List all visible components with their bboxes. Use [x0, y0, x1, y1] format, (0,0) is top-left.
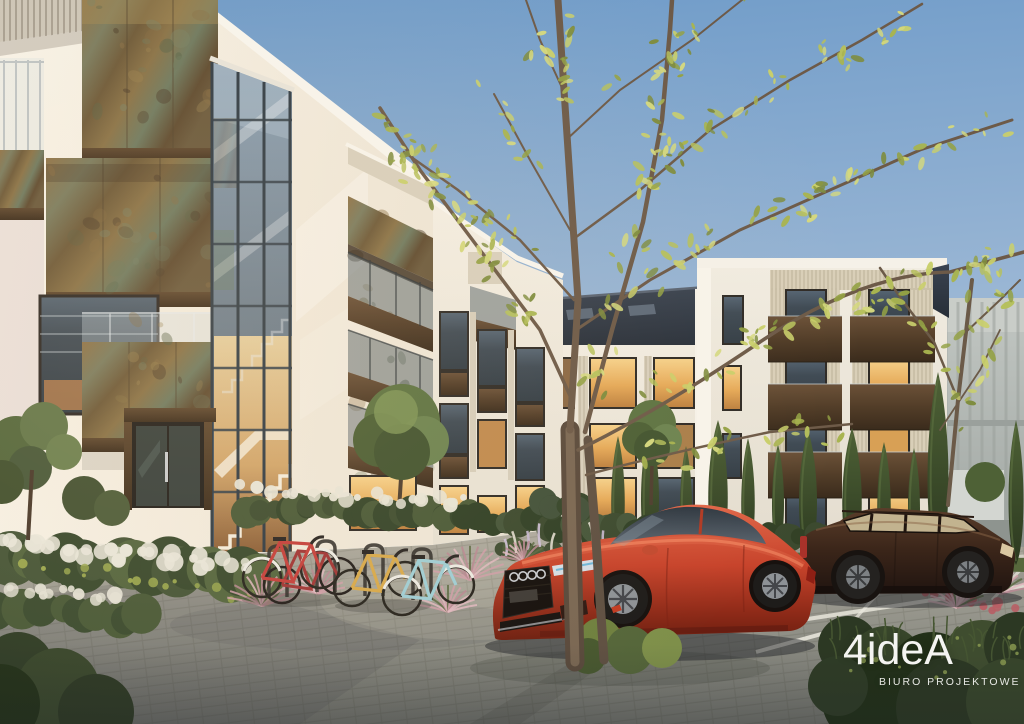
warm-light-overlay — [0, 0, 1024, 724]
scene-illustration — [0, 0, 1024, 724]
studio-watermark: 4ideA BIURO PROJEKTOWE — [843, 629, 1021, 688]
architectural-render: 4ideA BIURO PROJEKTOWE — [0, 0, 1024, 724]
brand-tagline: BIURO PROJEKTOWE — [843, 676, 1021, 688]
brand-logo-text: 4ideA — [843, 629, 1021, 672]
